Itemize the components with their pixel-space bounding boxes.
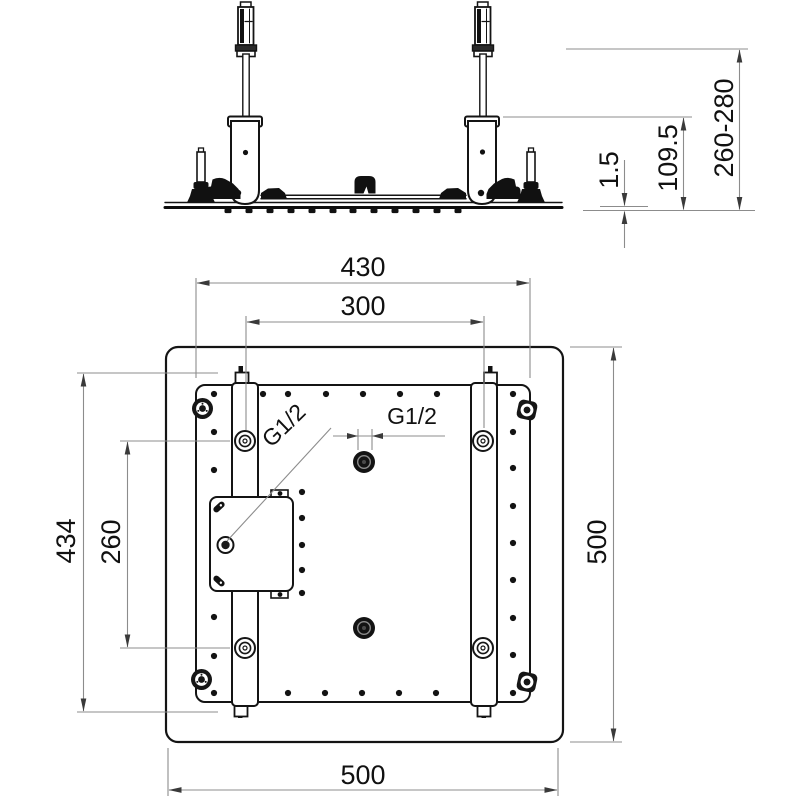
dim-inner-width: 430 xyxy=(340,252,385,282)
side-view-dimensions: 1.5 109.5 260-280 xyxy=(503,49,755,248)
rod-left xyxy=(243,54,249,117)
technical-drawing: 1.5 109.5 260-280 xyxy=(0,0,800,800)
dim-inner-height: 434 xyxy=(51,518,81,563)
nozzle-row xyxy=(225,209,462,214)
hanger-left xyxy=(228,2,262,204)
ceiling-plate xyxy=(165,203,562,208)
cross-bar xyxy=(261,195,466,199)
corner-screw-bl xyxy=(191,669,212,690)
center-clip xyxy=(355,176,376,194)
drawing-svg: 1.5 109.5 260-280 xyxy=(0,0,800,800)
wedge-right xyxy=(439,188,466,199)
plan-view xyxy=(166,347,563,742)
dim-overall-height-range: 260-280 xyxy=(709,78,739,177)
dim-plate-thickness: 1.5 xyxy=(594,151,624,189)
inlet-port-bottom xyxy=(353,617,375,639)
side-view xyxy=(165,2,562,213)
dim-hanger-spacing: 300 xyxy=(340,291,385,321)
connection-box xyxy=(210,490,293,598)
adjust-nut-right xyxy=(473,45,494,51)
rod-right xyxy=(480,54,486,117)
dim-housing-height: 109.5 xyxy=(653,124,683,192)
dim-outer-height: 500 xyxy=(582,519,612,564)
adjust-nut-left xyxy=(236,45,257,51)
dim-outer-width: 500 xyxy=(340,760,385,790)
thread-label-center: G1/2 xyxy=(387,403,437,429)
inlet-port-top xyxy=(353,451,375,473)
corner-screw-tl xyxy=(192,398,213,419)
hanger-right xyxy=(465,2,499,204)
end-bolt-right xyxy=(517,148,545,203)
dim-fixing-spacing: 260 xyxy=(96,519,126,564)
end-bolt-left xyxy=(187,148,215,203)
wedge-left xyxy=(261,188,287,199)
